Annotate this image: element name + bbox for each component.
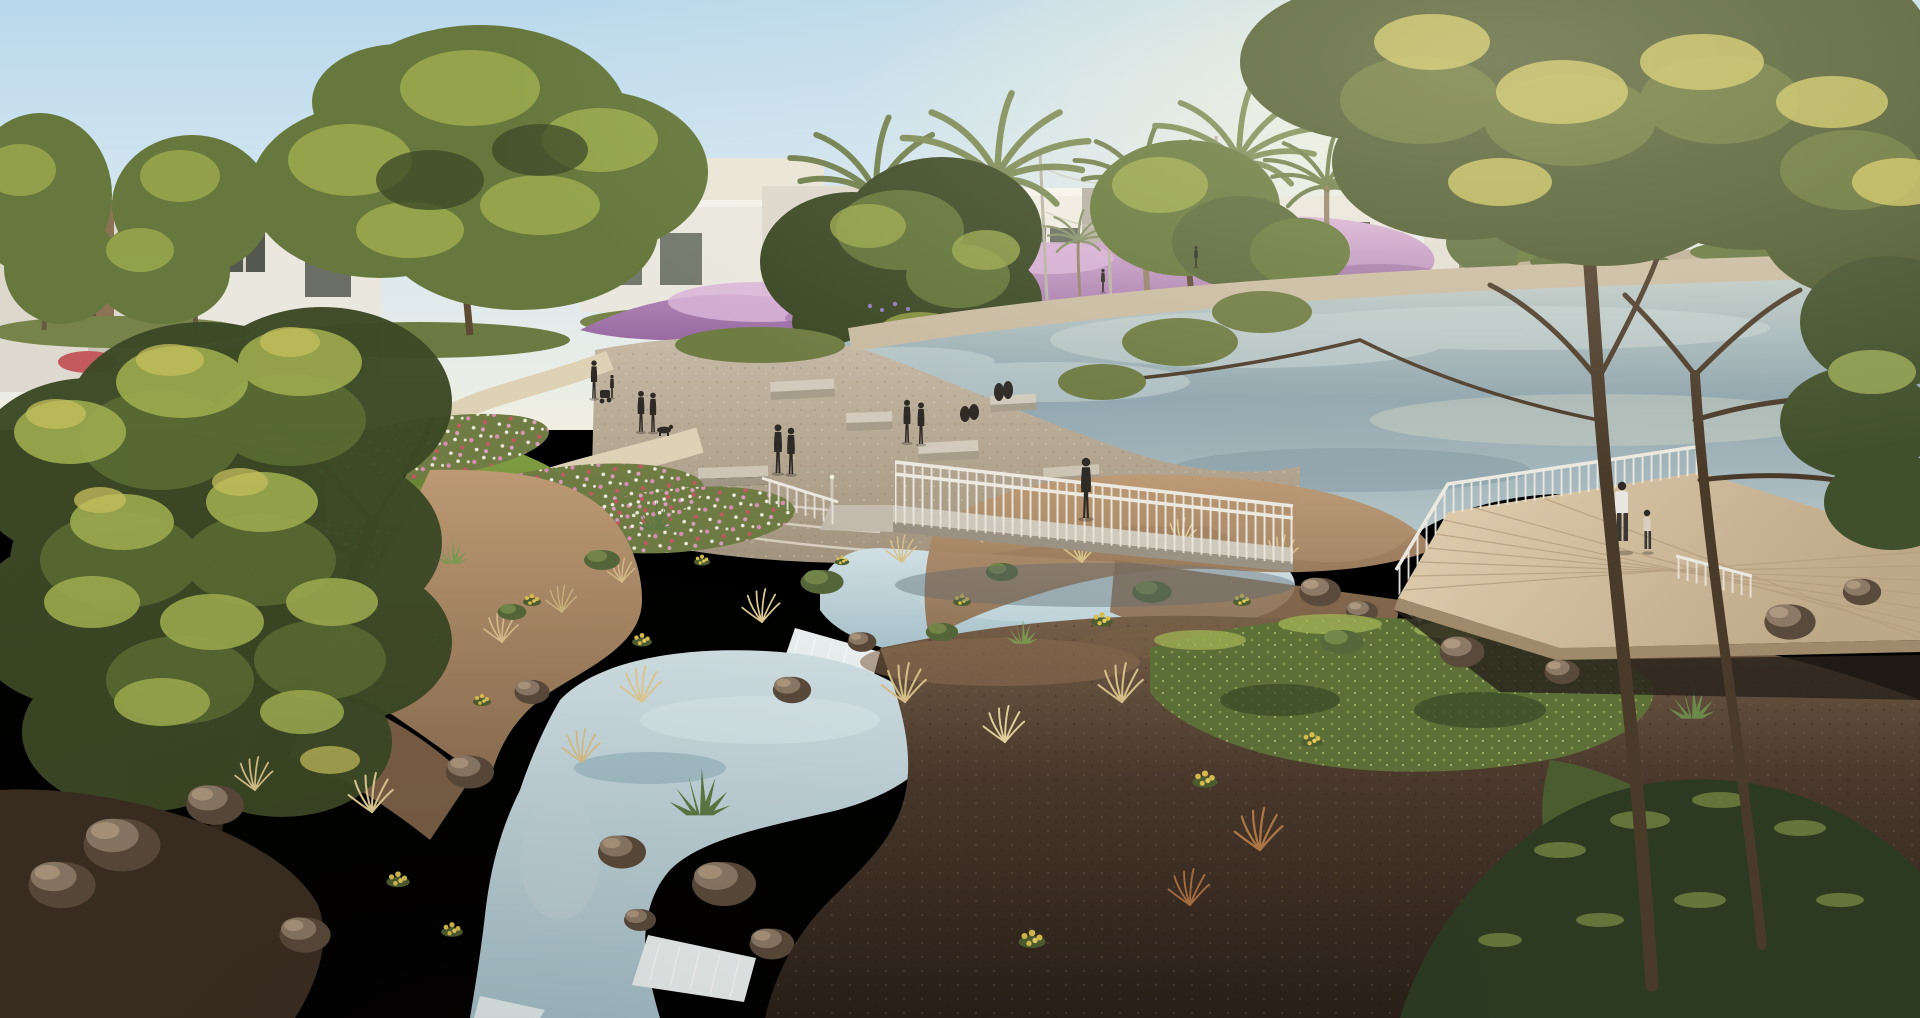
landscape-render: [0, 0, 1920, 1018]
vignette: [0, 450, 1644, 1018]
park-render: [0, 0, 1920, 1018]
